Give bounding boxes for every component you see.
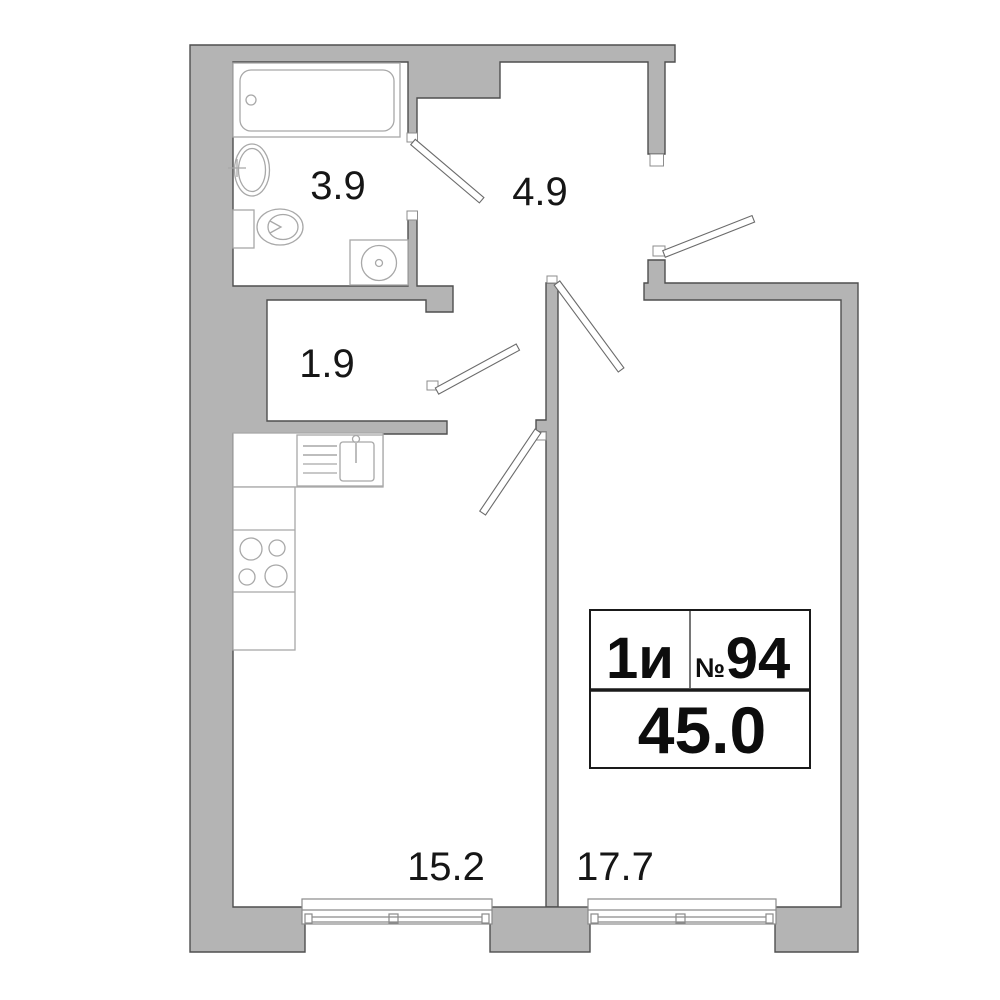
bedroom-door-jamb — [547, 276, 557, 283]
bedroom-window — [588, 899, 776, 924]
entrance-door-leaf — [663, 216, 755, 258]
room-label-hallway: 4.9 — [512, 170, 568, 214]
living-door-leaf — [480, 429, 541, 515]
room-label-storage: 1.9 — [299, 342, 355, 386]
entrance-door-jamb-top — [650, 154, 664, 166]
kitchen-fixtures — [233, 433, 383, 650]
wall-window-pier — [490, 907, 590, 952]
apartment-type: 1и — [606, 626, 674, 691]
bathroom-door-leaf — [411, 139, 484, 203]
bedroom-door-leaf — [554, 281, 624, 372]
apartment-number-sign: № — [695, 653, 725, 683]
bathroom-door-jamb-bottom — [407, 211, 418, 220]
washbasin — [228, 144, 270, 196]
kitchen-sink — [297, 435, 383, 486]
bathtub — [233, 63, 400, 137]
storage-door-leaf — [435, 344, 519, 394]
wall-central-partition — [536, 283, 558, 907]
room-label-bathroom: 3.9 — [310, 164, 366, 208]
kitchen-counter-left — [233, 487, 295, 650]
toilet — [233, 209, 303, 248]
floor-plan: 3.9 4.9 1.9 15.2 17.7 1и № 94 45.0 — [0, 0, 1000, 1000]
washing-machine — [350, 240, 408, 285]
room-label-kitchen-living: 15.2 — [407, 845, 485, 889]
living-room-window — [302, 899, 492, 924]
wall-east-structure — [644, 260, 858, 952]
room-label-bedroom: 17.7 — [576, 845, 654, 889]
doors — [407, 133, 755, 515]
info-card: 1и № 94 45.0 — [590, 610, 810, 768]
apartment-number: 94 — [726, 626, 791, 691]
apartment-total-area: 45.0 — [638, 693, 766, 767]
